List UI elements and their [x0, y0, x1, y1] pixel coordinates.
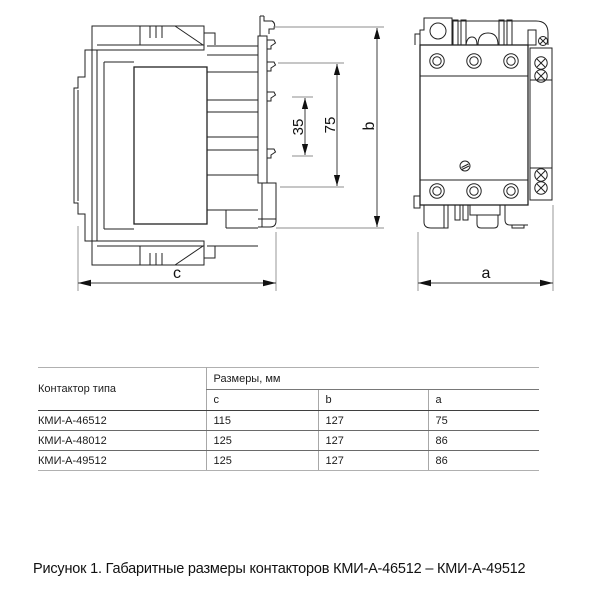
front-view-drawing — [414, 18, 552, 228]
side-view-drawing — [74, 26, 258, 265]
dim-label-b: b — [361, 121, 378, 130]
table-header-dimensions: Размеры, мм — [206, 368, 539, 390]
table-row: КМИ-А-48012 125 127 86 — [38, 431, 539, 451]
table-header-type: Контактор типа — [38, 368, 206, 411]
cell-c: 125 — [206, 431, 318, 451]
dimensions-table: Контактор типа Размеры, мм c b a КМИ-А-4… — [38, 367, 539, 471]
dimension-lines — [78, 28, 553, 283]
table-subheader-a: a — [428, 390, 539, 411]
cell-type: КМИ-А-49512 — [38, 451, 206, 471]
figure-caption: Рисунок 1. Габаритные размеры контакторо… — [33, 561, 525, 577]
cell-c: 125 — [206, 451, 318, 471]
cell-a: 86 — [428, 431, 539, 451]
cell-type: КМИ-А-46512 — [38, 411, 206, 431]
dim-label-75: 75 — [322, 117, 339, 134]
cell-type: КМИ-А-48012 — [38, 431, 206, 451]
table-row: КМИ-А-46512 115 127 75 — [38, 411, 539, 431]
catalog-page: 35 75 b c a Контактор типа Размеры, мм c… — [0, 0, 600, 600]
din-rail-plate — [258, 16, 276, 227]
table-row: КМИ-А-49512 125 127 86 — [38, 451, 539, 471]
cell-b: 127 — [318, 431, 428, 451]
dim-label-35: 35 — [290, 119, 307, 136]
cell-a: 75 — [428, 411, 539, 431]
table-subheader-c: c — [206, 390, 318, 411]
dimension-drawing: 35 75 b c a — [0, 0, 600, 310]
dim-label-c: c — [173, 265, 181, 282]
cell-b: 127 — [318, 411, 428, 431]
table-subheader-b: b — [318, 390, 428, 411]
cell-b: 127 — [318, 451, 428, 471]
cell-a: 86 — [428, 451, 539, 471]
dim-label-a: a — [482, 265, 491, 282]
cell-c: 115 — [206, 411, 318, 431]
